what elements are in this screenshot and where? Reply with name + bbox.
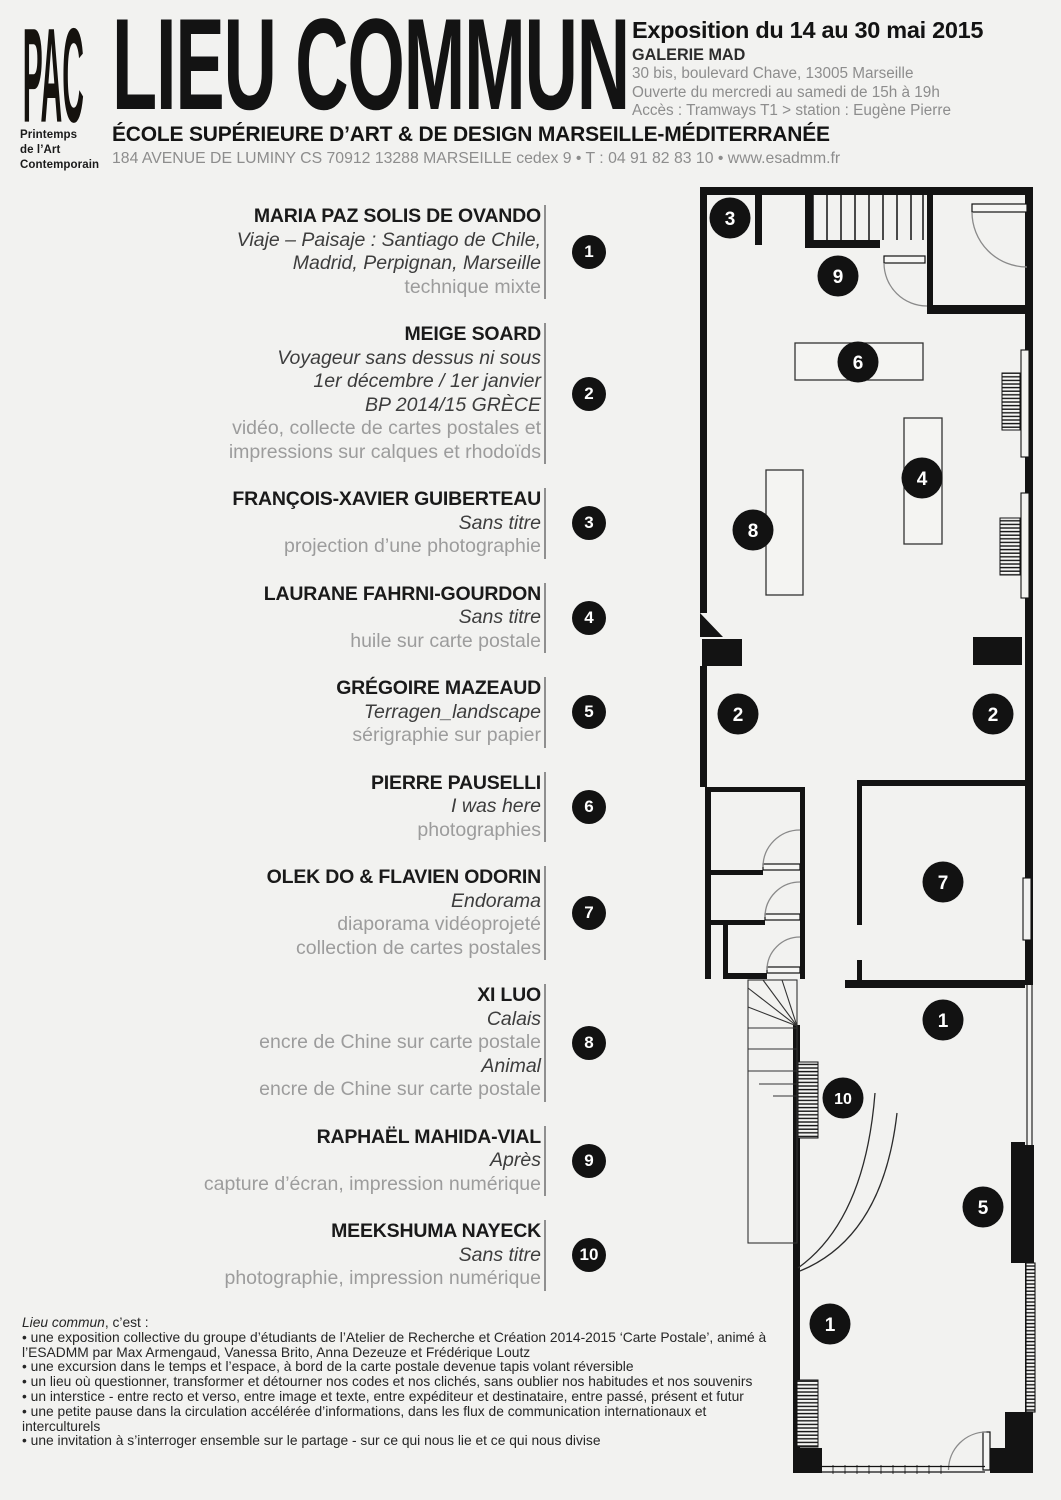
artist-number: 6 xyxy=(572,790,606,824)
artist-work-lines: Viaje – Paisaje : Santiago de Chile,Madr… xyxy=(0,229,541,300)
artist-entry: MARIA PAZ SOLIS DE OVANDO Viaje – Paisaj… xyxy=(0,205,632,299)
plan-marker-number: 1 xyxy=(825,1315,836,1336)
about-bullets: • une exposition collective du groupe d’… xyxy=(22,1331,770,1449)
about-bullet: • un interstice - entre recto et verso, … xyxy=(22,1390,770,1405)
about-bullet: • un lieu où questionner, transformer et… xyxy=(22,1375,770,1390)
artist-number: 8 xyxy=(572,1026,606,1060)
artist-text: OLEK DO & FLAVIEN ODORIN Endoramadiapora… xyxy=(0,866,541,960)
artist-entry: RAPHAËL MAHIDA-VIAL Aprèscapture d’écran… xyxy=(0,1126,632,1197)
about-lead-rest: , c’est : xyxy=(105,1315,149,1330)
floor-plan: 3964822711051 xyxy=(695,185,1040,1480)
artist-title: 1er décembre / 1er janvier xyxy=(0,370,541,394)
artist-name: MARIA PAZ SOLIS DE OVANDO xyxy=(0,205,541,229)
artist-name: RAPHAËL MAHIDA-VIAL xyxy=(0,1126,541,1150)
artist-entry: MEIGE SOARD Voyageur sans dessus ni sous… xyxy=(0,323,632,464)
artist-entry: GRÉGOIRE MAZEAUD Terragen_landscapesérig… xyxy=(0,677,632,748)
artist-text: MEEKSHUMA NAYECK Sans titrephotographie,… xyxy=(0,1220,541,1291)
artist-title: Viaje – Paisaje : Santiago de Chile, xyxy=(0,229,541,253)
venue-details: 30 bis, boulevard Chave, 13005 Marseille… xyxy=(632,65,1052,121)
artist-title: Sans titre xyxy=(0,1244,541,1268)
artist-number-badge: 6 xyxy=(546,772,632,843)
artist-entry: FRANÇOIS-XAVIER GUIBERTEAU Sans titrepro… xyxy=(0,488,632,559)
artist-number-badge: 1 xyxy=(546,205,632,299)
artist-work-lines: Sans titrehuile sur carte postale xyxy=(0,606,541,653)
artist-work-lines: Sans titrephotographie, impression numér… xyxy=(0,1244,541,1291)
artist-medium: photographies xyxy=(0,819,541,843)
artist-name: XI LUO xyxy=(0,984,541,1008)
artist-text: MEIGE SOARD Voyageur sans dessus ni sous… xyxy=(0,323,541,464)
artist-number-badge: 3 xyxy=(546,488,632,559)
artist-text: PIERRE PAUSELLI I was herephotographies xyxy=(0,772,541,843)
plan-marker-number: 1 xyxy=(938,1011,949,1032)
artist-name: PIERRE PAUSELLI xyxy=(0,772,541,796)
artist-text: LAURANE FAHRNI-GOURDON Sans titrehuile s… xyxy=(0,583,541,654)
artist-medium: vidéo, collecte de cartes postales et xyxy=(0,417,541,441)
artist-work-lines: Sans titreprojection d’une photographie xyxy=(0,512,541,559)
artist-medium: projection d’une photographie xyxy=(0,535,541,559)
floor-plan-svg: 3964822711051 xyxy=(695,185,1040,1480)
artist-title: Sans titre xyxy=(0,512,541,536)
artist-work-lines: I was herephotographies xyxy=(0,795,541,842)
page-title-text: LIEU COMMUN xyxy=(112,8,629,120)
artist-medium: sérigraphie sur papier xyxy=(0,724,541,748)
plan-marker-number: 9 xyxy=(833,267,844,288)
artist-number: 1 xyxy=(572,235,606,269)
artist-text: GRÉGOIRE MAZEAUD Terragen_landscapesérig… xyxy=(0,677,541,748)
artist-work-lines: Endoramadiaporama vidéoprojetécollection… xyxy=(0,890,541,961)
about-lead-italic: Lieu commun xyxy=(22,1315,105,1330)
artist-text: XI LUO Calaisencre de Chine sur carte po… xyxy=(0,984,541,1102)
artist-name: GRÉGOIRE MAZEAUD xyxy=(0,677,541,701)
plan-marker-number: 4 xyxy=(917,469,928,490)
artist-medium: huile sur carte postale xyxy=(0,630,541,654)
artist-entry: OLEK DO & FLAVIEN ODORIN Endoramadiapora… xyxy=(0,866,632,960)
about-bullet: • une excursion dans le temps et l’espac… xyxy=(22,1360,770,1375)
artist-text: MARIA PAZ SOLIS DE OVANDO Viaje – Paisaj… xyxy=(0,205,541,299)
artist-number: 3 xyxy=(572,506,606,540)
artist-number-badge: 2 xyxy=(546,323,632,464)
about-section: Lieu commun, c’est : • une exposition co… xyxy=(22,1316,770,1449)
artist-medium: diaporama vidéoprojeté xyxy=(0,913,541,937)
pac-logo-letters: PAC xyxy=(22,24,114,128)
page-title: LIEU COMMUN xyxy=(111,8,656,120)
artist-medium: impressions sur calques et rhodoïds xyxy=(0,441,541,465)
artist-title: Animal xyxy=(0,1055,541,1079)
school-name: ÉCOLE SUPÉRIEURE D’ART & DE DESIGN MARSE… xyxy=(112,123,852,147)
plan-marker-number: 2 xyxy=(733,705,744,726)
artist-title: Terragen_landscape xyxy=(0,701,541,725)
artist-title: Calais xyxy=(0,1008,541,1032)
exhibition-info: Exposition du 14 au 30 mai 2015 GALERIE … xyxy=(632,17,1052,121)
artist-medium: collection de cartes postales xyxy=(0,937,541,961)
artist-medium: photographie, impression numérique xyxy=(0,1267,541,1291)
staircase-top xyxy=(813,195,923,240)
artist-number-badge: 8 xyxy=(546,984,632,1102)
artist-work-lines: Terragen_landscapesérigraphie sur papier xyxy=(0,701,541,748)
artist-number-badge: 4 xyxy=(546,583,632,654)
pac-logo-text: PAC xyxy=(23,24,84,128)
artist-name: LAURANE FAHRNI-GOURDON xyxy=(0,583,541,607)
plan-marker-number: 7 xyxy=(938,873,949,894)
artist-name: OLEK DO & FLAVIEN ODORIN xyxy=(0,866,541,890)
artist-title: Madrid, Perpignan, Marseille xyxy=(0,252,541,276)
artist-title: BP 2014/15 GRÈCE xyxy=(0,394,541,418)
plan-marker-number: 2 xyxy=(988,705,999,726)
exhibition-dates: Exposition du 14 au 30 mai 2015 xyxy=(632,17,1052,44)
artist-title: Endorama xyxy=(0,890,541,914)
staircase-bottom xyxy=(748,980,797,1243)
artist-text: FRANÇOIS-XAVIER GUIBERTEAU Sans titrepro… xyxy=(0,488,541,559)
artist-name: FRANÇOIS-XAVIER GUIBERTEAU xyxy=(0,488,541,512)
venue-detail-line: Ouverte du mercredi au samedi de 15h à 1… xyxy=(632,84,1052,103)
artist-text: RAPHAËL MAHIDA-VIAL Aprèscapture d’écran… xyxy=(0,1126,541,1197)
artist-title: Après xyxy=(0,1149,541,1173)
venue-name: GALERIE MAD xyxy=(632,46,1052,65)
about-bullet: • une invitation à s’interroger ensemble… xyxy=(22,1434,770,1449)
plan-marker-number: 6 xyxy=(853,353,864,374)
about-bullet: • une exposition collective du groupe d’… xyxy=(22,1331,770,1361)
artist-work-lines: Calaisencre de Chine sur carte postaleAn… xyxy=(0,1008,541,1102)
artist-title: I was here xyxy=(0,795,541,819)
artist-number-badge: 9 xyxy=(546,1126,632,1197)
artist-entry: LAURANE FAHRNI-GOURDON Sans titrehuile s… xyxy=(0,583,632,654)
artist-number: 2 xyxy=(572,377,606,411)
about-bullet: • une petite pause dans la circulation a… xyxy=(22,1405,770,1435)
school-block: ÉCOLE SUPÉRIEURE D’ART & DE DESIGN MARSE… xyxy=(112,123,852,168)
artist-number-badge: 5 xyxy=(546,677,632,748)
artist-title: Sans titre xyxy=(0,606,541,630)
artist-entry: PIERRE PAUSELLI I was herephotographies … xyxy=(0,772,632,843)
plan-marker-number: 8 xyxy=(748,521,759,542)
artist-number: 10 xyxy=(572,1238,606,1272)
about-lead: Lieu commun, c’est : xyxy=(22,1316,770,1331)
artist-title: Voyageur sans dessus ni sous xyxy=(0,347,541,371)
plan-marker-number: 5 xyxy=(978,1198,989,1219)
artist-number: 5 xyxy=(572,695,606,729)
artist-medium: encre de Chine sur carte postale xyxy=(0,1078,541,1102)
artist-list: MARIA PAZ SOLIS DE OVANDO Viaje – Paisaj… xyxy=(0,205,632,1315)
venue-detail-line: Accès : Tramways T1 > station : Eugène P… xyxy=(632,102,1052,121)
artist-number: 4 xyxy=(572,601,606,635)
artist-number-badge: 10 xyxy=(546,1220,632,1291)
artist-work-lines: Aprèscapture d’écran, impression numériq… xyxy=(0,1149,541,1196)
artist-work-lines: Voyageur sans dessus ni sous1er décembre… xyxy=(0,347,541,465)
artist-medium: capture d’écran, impression numérique xyxy=(0,1173,541,1197)
artist-medium: technique mixte xyxy=(0,276,541,300)
venue-detail-line: 30 bis, boulevard Chave, 13005 Marseille xyxy=(632,65,1052,84)
artist-number: 7 xyxy=(572,896,606,930)
artist-name: MEEKSHUMA NAYECK xyxy=(0,1220,541,1244)
exhibition-poster: PAC Printempsde l’ArtContemporain LIEU C… xyxy=(0,0,1061,1500)
artist-name: MEIGE SOARD xyxy=(0,323,541,347)
artist-entry: MEEKSHUMA NAYECK Sans titrephotographie,… xyxy=(0,1220,632,1291)
plan-marker-number: 10 xyxy=(834,1091,852,1108)
storefront-glazing xyxy=(822,1465,985,1474)
plan-marker-number: 3 xyxy=(725,209,736,230)
artist-entry: XI LUO Calaisencre de Chine sur carte po… xyxy=(0,984,632,1102)
artist-medium: encre de Chine sur carte postale xyxy=(0,1031,541,1055)
school-address: 184 AVENUE DE LUMINY CS 70912 13288 MARS… xyxy=(112,150,852,168)
artist-number: 9 xyxy=(572,1144,606,1178)
artist-number-badge: 7 xyxy=(546,866,632,960)
pac-logo: PAC Printempsde l’ArtContemporain xyxy=(22,24,114,133)
